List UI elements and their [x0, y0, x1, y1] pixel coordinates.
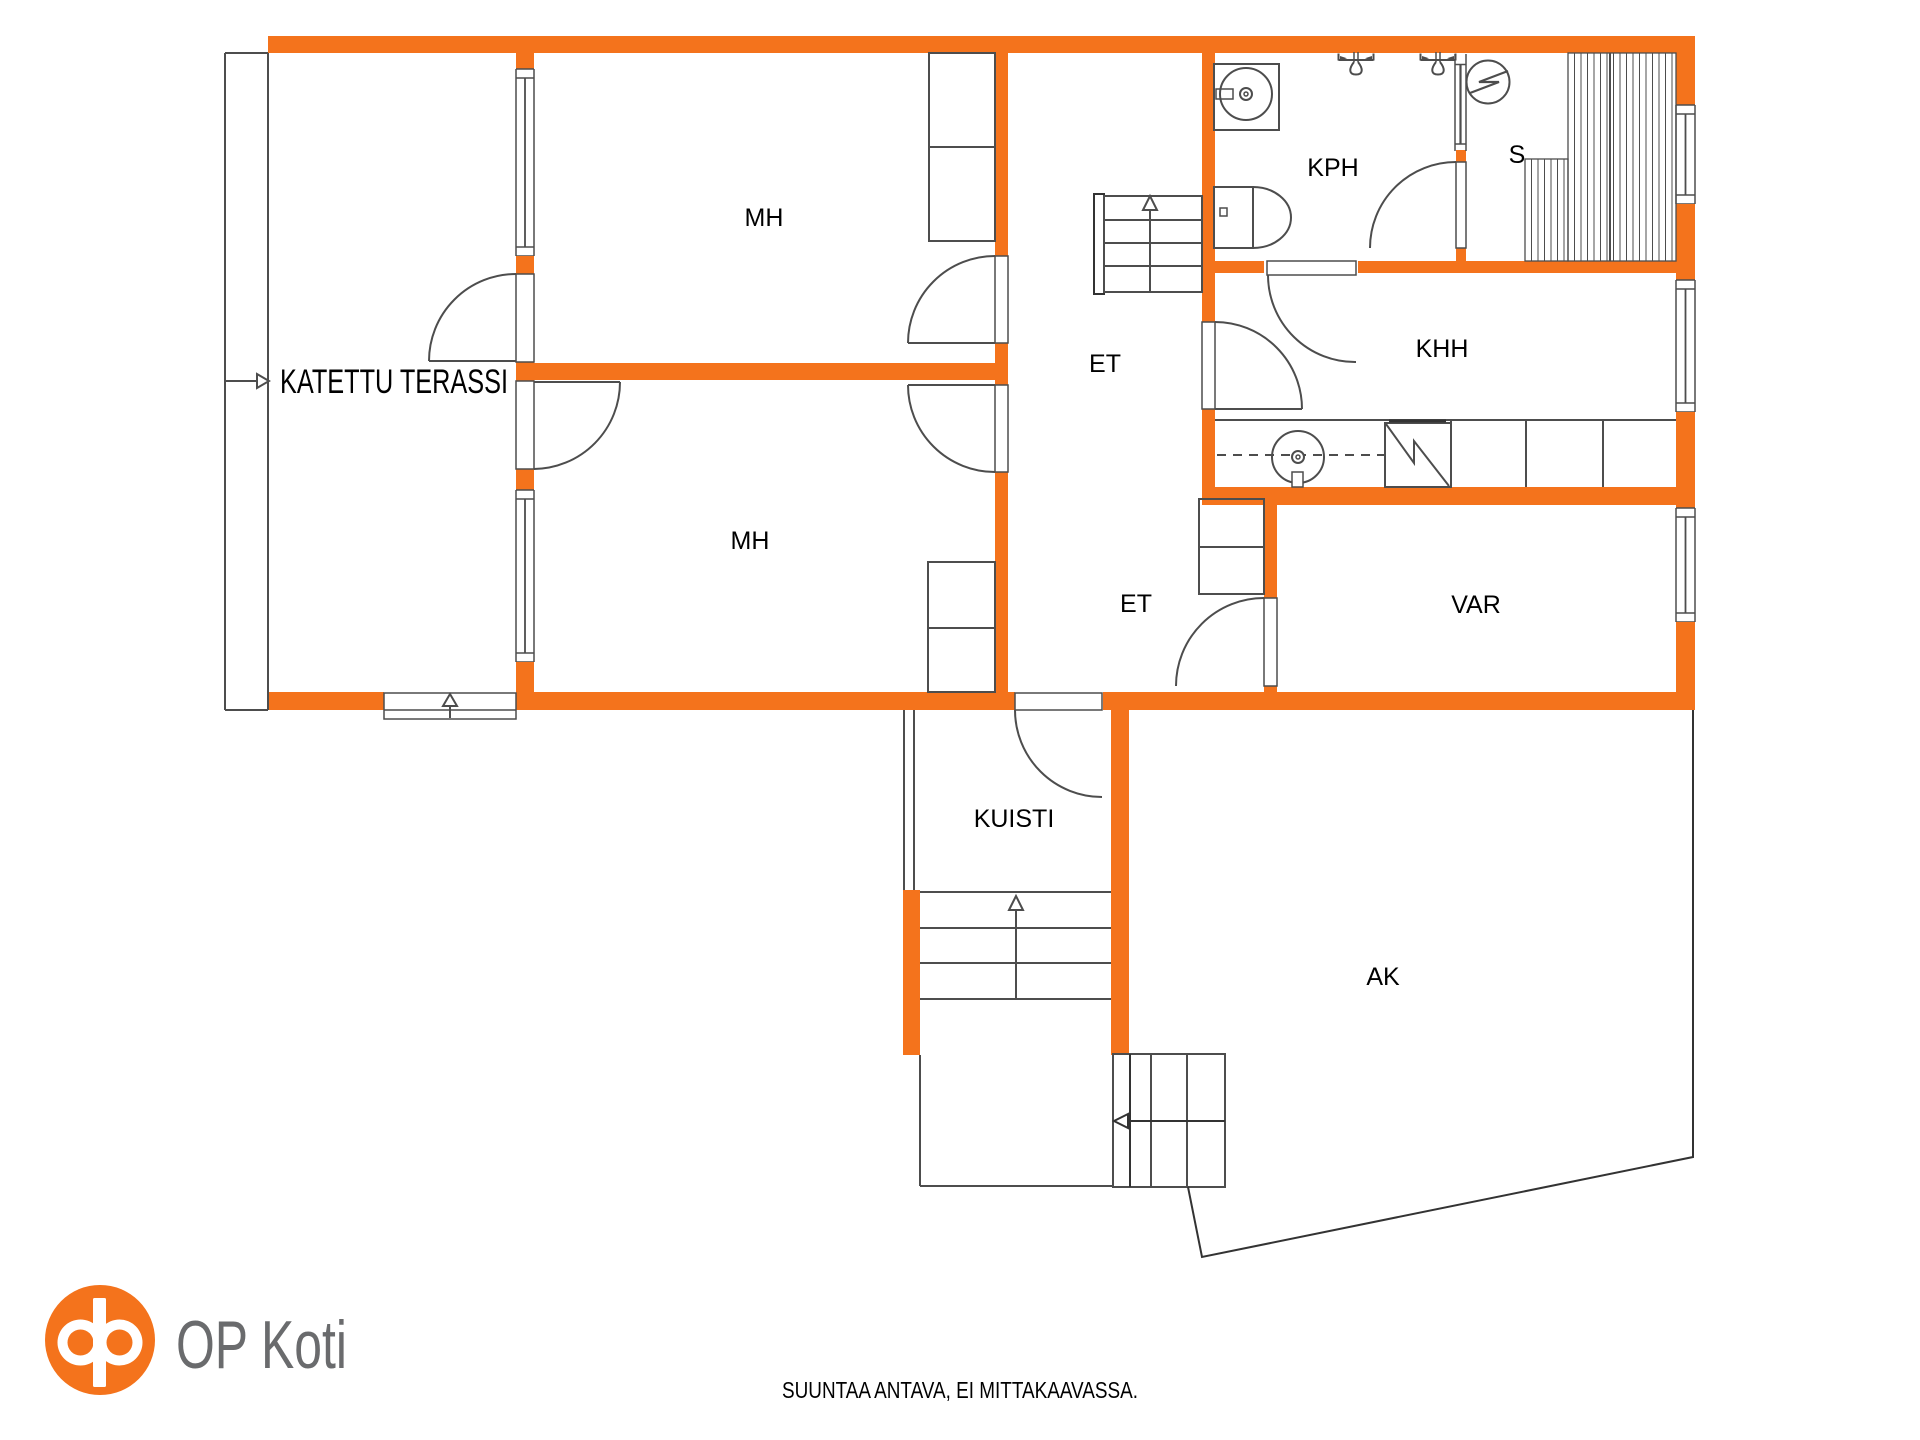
svg-text:KUISTI: KUISTI [974, 805, 1055, 833]
svg-text:KPH: KPH [1307, 154, 1358, 182]
svg-text:MH: MH [745, 204, 784, 232]
svg-text:VAR: VAR [1451, 591, 1501, 619]
svg-text:KATETTU TERASSI: KATETTU TERASSI [280, 363, 508, 401]
svg-text:ET: ET [1120, 590, 1152, 618]
svg-text:ET: ET [1089, 350, 1121, 378]
svg-text:OP Koti: OP Koti [176, 1307, 347, 1383]
svg-text:S: S [1509, 141, 1526, 169]
svg-text:KHH: KHH [1416, 335, 1469, 363]
svg-text:AK: AK [1366, 963, 1400, 991]
svg-text:SUUNTAA ANTAVA, EI MITTAKAAVAS: SUUNTAA ANTAVA, EI MITTAKAAVASSA. [782, 1377, 1138, 1403]
svg-text:MH: MH [731, 527, 770, 555]
